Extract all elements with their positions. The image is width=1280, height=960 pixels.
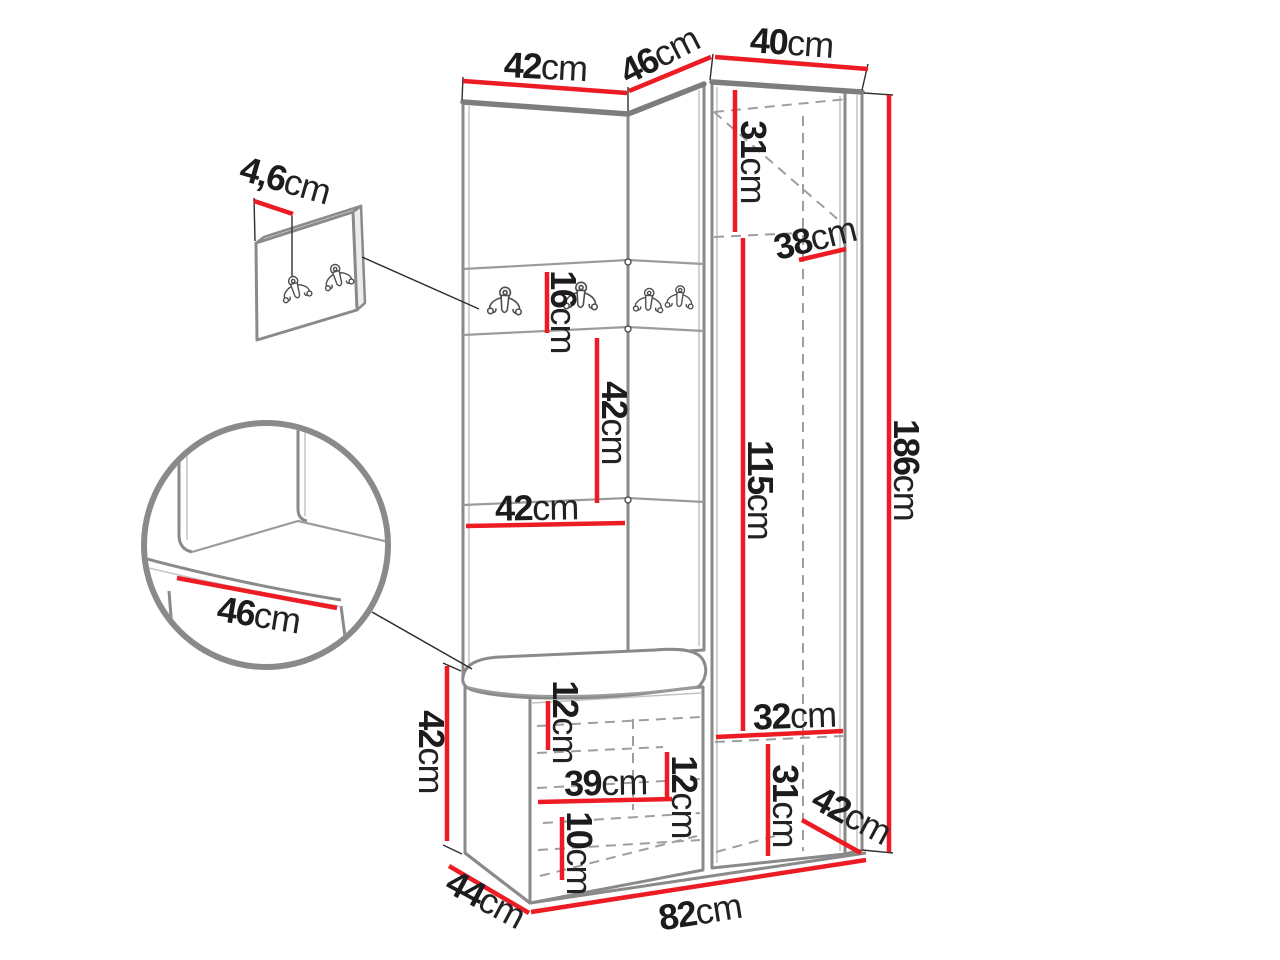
tuft-button xyxy=(625,497,631,503)
dimension-label: 10cm xyxy=(559,811,600,894)
dimension-label: 186cm xyxy=(886,419,927,521)
dimension-label: 16cm xyxy=(543,270,584,353)
dim-bench-bottom-10: 10cm xyxy=(559,811,600,894)
detail-pointer-line xyxy=(372,612,472,669)
dimension-label: 4,6cm xyxy=(236,148,336,213)
hook-panel-front-face xyxy=(256,212,357,340)
tuft-button xyxy=(625,326,631,332)
furniture-dimension-diagram-page: 42cm 46cm 40cm 4,6cm 16cm 42cm 42cm 31c xyxy=(0,0,1280,960)
wall-hook-panel-detail xyxy=(256,206,479,340)
dimension-line xyxy=(254,201,293,214)
dimension-label: 82cm xyxy=(656,885,745,939)
furniture-dimension-diagram: 42cm 46cm 40cm 4,6cm 16cm 42cm 42cm 31c xyxy=(0,0,1280,960)
dimension-label: 12cm xyxy=(545,680,586,763)
dimension-label: 42cm xyxy=(411,710,452,793)
dim-bench-shelf-height-12: 12cm xyxy=(664,752,705,839)
dimension-label: 115cm xyxy=(740,440,781,540)
dim-bench-height-42: 42cm xyxy=(411,666,452,841)
dimension-label: 46cm xyxy=(613,18,706,92)
dim-top-width-46: 46cm xyxy=(613,18,711,92)
dim-total-height-186: 186cm xyxy=(886,95,927,852)
tuft-button xyxy=(625,259,631,265)
dim-bench-top-12: 12cm xyxy=(545,680,586,763)
dimension-label: 12cm xyxy=(664,755,705,838)
dimension-label: 42cm xyxy=(495,486,579,528)
dimension-label: 39cm xyxy=(564,761,648,803)
dim-top-width-42: 42cm xyxy=(463,44,627,93)
dimension-label: 42cm xyxy=(503,44,588,89)
dimension-label: 42cm xyxy=(594,381,635,464)
detail-pointer-line xyxy=(362,257,479,309)
angled-panel xyxy=(628,84,704,655)
dim-hook-panel-depth: 4,6cm xyxy=(236,148,336,214)
dimension-label: 40cm xyxy=(749,19,835,66)
dim-top-width-40: 40cm xyxy=(715,19,868,69)
dimension-label: 31cm xyxy=(733,120,774,203)
dimension-label: 31cm xyxy=(765,764,806,847)
dimension-label: 32cm xyxy=(752,694,837,738)
cabinet-side xyxy=(845,91,862,854)
dim-rail-height-16: 16cm xyxy=(543,270,584,353)
corner-seat-detail xyxy=(144,421,472,669)
